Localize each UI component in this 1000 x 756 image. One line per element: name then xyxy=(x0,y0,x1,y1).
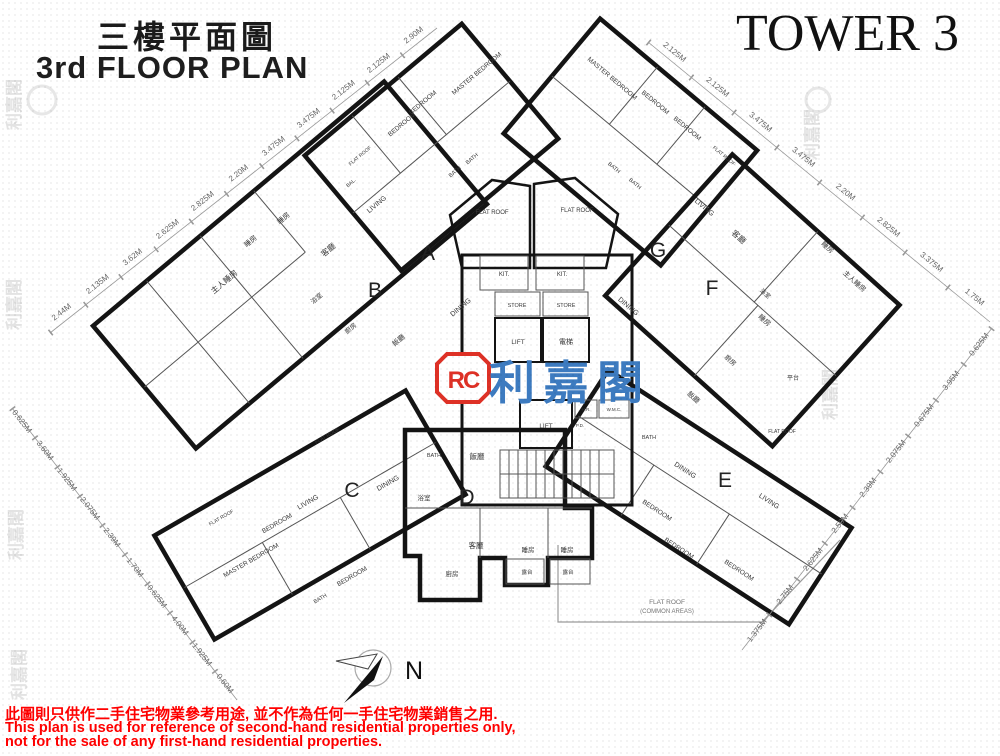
room-label: DINING xyxy=(673,461,697,480)
room-label: 睡房 xyxy=(756,312,772,328)
dim-label: 4.00M xyxy=(170,614,191,637)
watermark-text: 利嘉閣 xyxy=(6,509,26,560)
room-label: FLAT ROOF xyxy=(208,509,235,528)
dim-label: 1.75M xyxy=(963,287,986,308)
common-area-label: (COMMON AREAS) xyxy=(640,609,694,615)
north-label: N xyxy=(405,657,423,685)
dim-label: 2.125M xyxy=(704,75,731,99)
dimension-chain-right: 0.625M 3.95M 0.675M 2.075M 2.39M 2.50M 2… xyxy=(742,328,992,650)
dim-label: 3.95M xyxy=(941,369,962,392)
pd-label: P.D. xyxy=(576,423,584,428)
room-label: 浴室 xyxy=(418,493,432,502)
dimension-chain-top-right: 2.125M 2.125M 3.475M 3.475M 2.20M 2.825M… xyxy=(648,40,990,322)
room-label: 客廳 xyxy=(730,228,749,246)
unit-letter-f: F xyxy=(706,277,719,300)
room-label: KIT. xyxy=(499,272,510,278)
dim-label: 2.825M xyxy=(189,189,216,213)
disclaimer-english-2: not for the sale of any first-hand resid… xyxy=(5,736,995,750)
lift-label: LIFT xyxy=(539,423,552,430)
room-label: BEDROOM xyxy=(641,499,673,523)
flat-roof-label: FLAT ROOF xyxy=(475,210,508,216)
unit-letter-a: A xyxy=(421,242,435,265)
dim-label: 0.625M xyxy=(10,408,34,435)
dim-label: 2.135M xyxy=(84,272,111,296)
room-label: FLAT ROOF xyxy=(768,429,796,435)
watermark-ring xyxy=(28,86,56,114)
compass-open-blade xyxy=(336,654,377,669)
room-label: 睡房 xyxy=(242,233,259,249)
room-label: BATH xyxy=(627,177,642,191)
room-label: 露台 xyxy=(562,568,574,576)
dim-label: 2.90M xyxy=(402,24,425,45)
dim-label: 2.125M xyxy=(365,51,392,75)
flat-roof-label: FLAT ROOF xyxy=(560,208,593,214)
room-label: BEDROOM xyxy=(723,559,755,583)
room-label: BATH xyxy=(465,152,480,166)
room-label: BEDROOM xyxy=(663,537,695,561)
unit-g-wing xyxy=(504,19,757,266)
dim-label: 2.39M xyxy=(858,476,879,499)
dim-label: 2.75M xyxy=(775,583,796,606)
north-arrow: N xyxy=(336,650,423,703)
watermark-ring xyxy=(806,88,830,112)
dim-label: 1.375M xyxy=(745,617,769,644)
room-label: 廚房 xyxy=(446,569,459,578)
logo-brand-text: 利嘉閣 xyxy=(489,357,651,409)
room-label: FLAT ROOF xyxy=(348,145,373,167)
dim-label: 0.625M xyxy=(967,331,991,358)
room-label: MASTER BEDROOM xyxy=(586,56,638,102)
room-label: 浴室 xyxy=(758,287,772,301)
dim-label: 3.475M xyxy=(295,106,322,130)
room-label: BEDROOM xyxy=(387,111,417,138)
room-label: BATH xyxy=(642,435,656,441)
room-label: 睡房 xyxy=(522,545,535,554)
room-label: 睡房 xyxy=(275,210,292,226)
room-label: 平台 xyxy=(787,374,799,382)
room-label: KIT. xyxy=(557,272,568,278)
room-label: 飯廳 xyxy=(685,389,701,405)
lift-label: LIFT xyxy=(511,339,524,346)
room-label: 主人睡房 xyxy=(209,268,240,296)
dim-label: 2.625M xyxy=(154,217,181,241)
store-label: STORE xyxy=(508,303,527,309)
dim-label: 2.20M xyxy=(227,162,250,183)
room-label: 浴室 xyxy=(309,290,325,306)
dim-label: 2.125M xyxy=(661,40,688,64)
room-label: 飯廳 xyxy=(470,451,485,461)
unit-b-wing xyxy=(93,82,487,449)
lift-label-zh: 電梯 xyxy=(559,337,573,346)
unit-e-room-labels: DINING LIVING BEDROOM BEDROOM BEDROOM BA… xyxy=(641,429,796,583)
dim-label: 0.675M xyxy=(912,402,936,429)
ricacorp-logo: RC 利嘉閣 xyxy=(437,354,651,409)
room-label: BAL. xyxy=(345,177,357,189)
room-label: DINING xyxy=(376,475,401,493)
common-area-label: FLAT ROOF xyxy=(649,599,685,606)
floor-plan-drawing: 利嘉閣 利嘉閣 利嘉閣 利嘉閣 利嘉閣 利嘉閣 xyxy=(0,0,1000,756)
room-label: BEDROOM xyxy=(672,115,702,142)
unit-letter-e: E xyxy=(718,469,732,492)
unit-letter-d: D xyxy=(459,486,474,509)
room-label: FLAT ROOF xyxy=(314,427,341,446)
dim-label: 3.62M xyxy=(121,246,144,267)
dim-label: 0.625M xyxy=(145,583,169,610)
room-label: 睡房 xyxy=(561,545,574,554)
dim-label: 2.075M xyxy=(884,438,908,465)
room-label: BATH xyxy=(427,453,441,459)
room-label: BEDROOM xyxy=(640,89,670,116)
room-label: MASTER BEDROOM xyxy=(451,51,503,97)
room-label: 露台 xyxy=(521,568,533,576)
logo-monogram: RC xyxy=(448,367,480,394)
room-label: LIVING xyxy=(366,195,388,215)
unit-letter-c: C xyxy=(344,479,359,502)
room-label: 客廳 xyxy=(319,241,338,259)
room-label: BATH xyxy=(313,593,328,605)
room-label: 飯廳 xyxy=(390,332,407,348)
dimension-chain-left: 0.625M 3.60M 1.925M 2.075M 2.39M 1.70M 0… xyxy=(10,408,237,700)
dim-label: 3.475M xyxy=(260,134,287,158)
dim-label: 3.475M xyxy=(747,110,774,134)
watermark-text: 利嘉閣 xyxy=(4,79,24,130)
floor-plan-page: 三樓平面圖 3rd FLOOR PLAN TOWER 3 利嘉閣 利嘉閣 利嘉閣… xyxy=(0,0,1000,756)
room-label: 客廳 xyxy=(469,540,484,550)
dim-label: 1.70M xyxy=(125,556,146,579)
dim-label: 2.125M xyxy=(330,78,357,102)
dim-label: 2.075M xyxy=(78,495,102,522)
disclaimer: 此圖則只供作二手住宅物業參考用途, 並不作為任何一手住宅物業銷售之用. This… xyxy=(5,707,995,749)
dim-label: 1.925M xyxy=(190,641,214,668)
watermark-text: 利嘉閣 xyxy=(9,649,29,700)
room-label: LIVING xyxy=(297,494,320,512)
room-label: BATH xyxy=(606,161,621,175)
dim-label: 2.39M xyxy=(102,526,123,549)
room-label: BEDROOM xyxy=(261,512,294,535)
dim-label: 3.375M xyxy=(918,250,945,274)
dim-label: 2.825M xyxy=(875,215,902,239)
room-label: 廚房 xyxy=(723,352,739,367)
dim-label: 1.925M xyxy=(55,466,79,493)
staircase xyxy=(500,450,614,498)
dim-label: 0.60M xyxy=(215,672,236,695)
dim-label: 3.60M xyxy=(35,439,56,462)
room-label: LIVING xyxy=(757,493,780,511)
unit-letter-g: G xyxy=(650,239,666,262)
watermark-text: 利嘉閣 xyxy=(4,279,24,330)
store-label: STORE xyxy=(557,303,576,309)
dim-label: 2.44M xyxy=(50,301,73,322)
unit-letter-b: B xyxy=(368,279,382,302)
dim-label: 2.20M xyxy=(834,182,857,203)
